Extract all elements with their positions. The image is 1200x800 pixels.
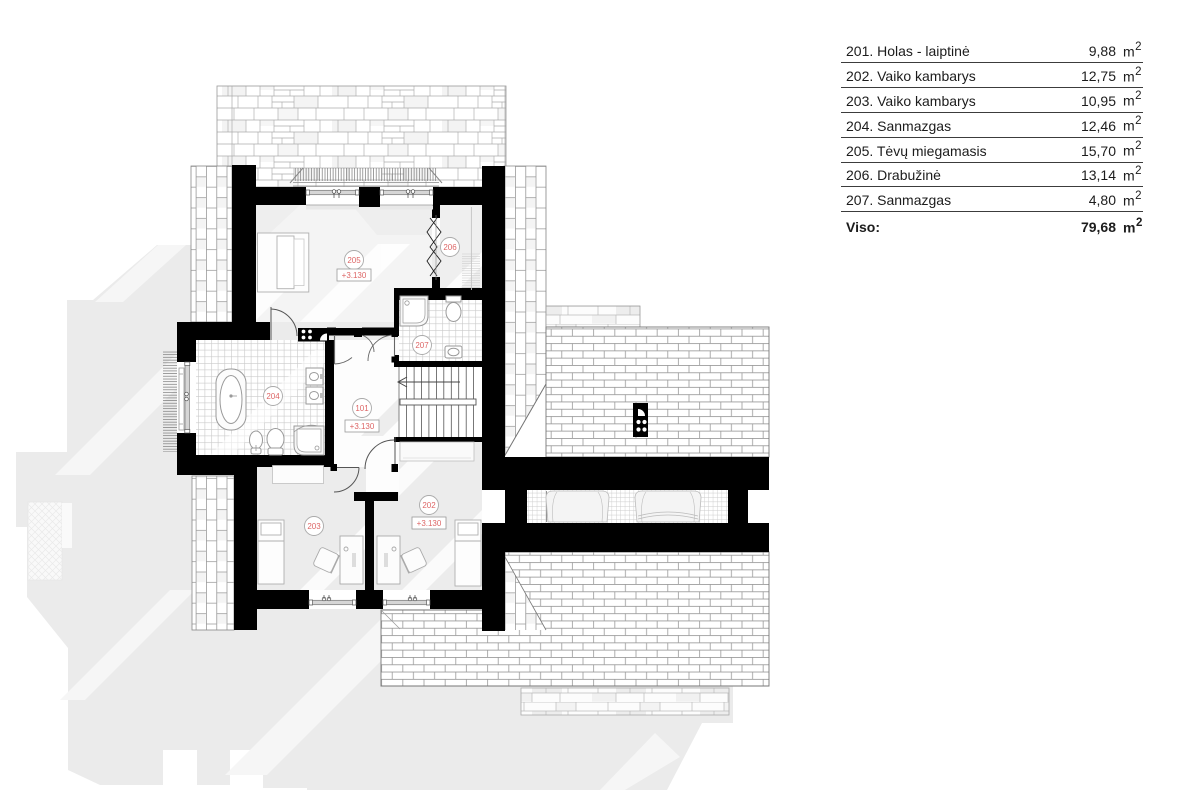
- svg-text:+3.130: +3.130: [350, 422, 375, 431]
- svg-text:205: 205: [347, 256, 361, 265]
- svg-text:204: 204: [266, 392, 280, 401]
- svg-text:101: 101: [355, 404, 369, 413]
- svg-text:206: 206: [443, 243, 457, 252]
- svg-text:203: 203: [307, 522, 321, 531]
- svg-text:207: 207: [415, 341, 429, 350]
- svg-text:+3.130: +3.130: [417, 519, 442, 528]
- svg-text:202: 202: [422, 501, 436, 510]
- svg-text:+3.130: +3.130: [342, 271, 367, 280]
